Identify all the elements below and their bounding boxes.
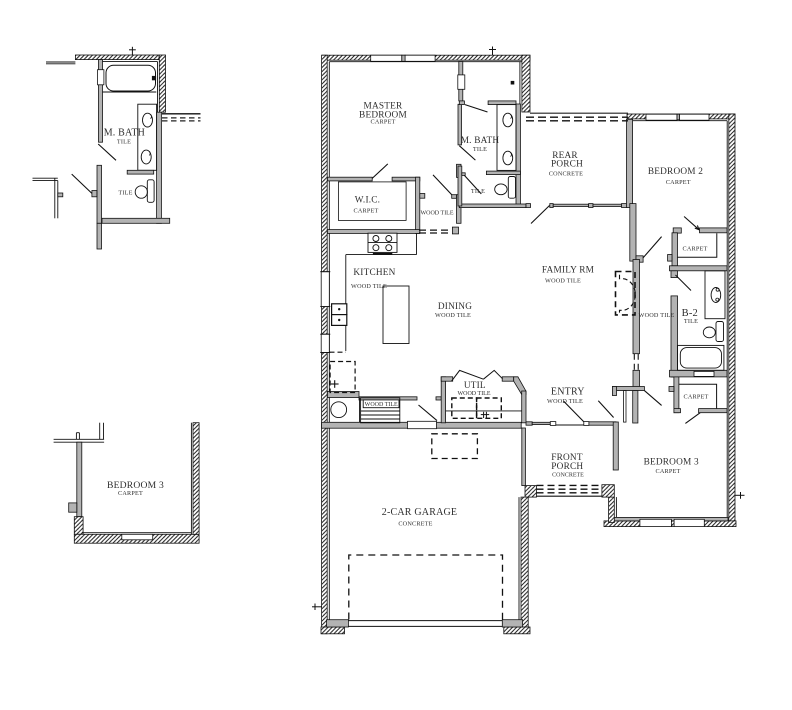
svg-text:CARPET: CARPET — [118, 490, 143, 497]
svg-text:CARPET: CARPET — [684, 394, 709, 401]
svg-text:WOOD TILE: WOOD TILE — [351, 283, 387, 290]
svg-text:WOOD TILE: WOOD TILE — [639, 312, 675, 319]
svg-text:CARPET: CARPET — [656, 468, 681, 475]
svg-text:ENTRY: ENTRY — [551, 386, 585, 397]
svg-text:CARPET: CARPET — [683, 245, 708, 252]
svg-text:BEDROOM 2: BEDROOM 2 — [648, 167, 703, 177]
svg-text:KITCHEN: KITCHEN — [353, 268, 395, 278]
svg-text:CONCRETE: CONCRETE — [549, 170, 583, 177]
svg-text:CONCRETE: CONCRETE — [552, 472, 584, 478]
svg-text:TILE: TILE — [118, 189, 132, 196]
svg-text:2-CAR GARAGE: 2-CAR GARAGE — [382, 507, 457, 518]
svg-text:FAMILY RM: FAMILY RM — [542, 265, 594, 275]
svg-text:WOOD TILE: WOOD TILE — [545, 277, 581, 284]
svg-text:CONCRETE: CONCRETE — [398, 521, 432, 528]
svg-text:CARPET: CARPET — [354, 207, 379, 214]
svg-text:WOOD TILE: WOOD TILE — [420, 210, 453, 216]
svg-text:PORCH: PORCH — [551, 462, 583, 472]
svg-text:WOOD TILE: WOOD TILE — [547, 398, 583, 405]
svg-text:WOOD TILE: WOOD TILE — [457, 391, 490, 397]
svg-text:UTIL: UTIL — [464, 381, 486, 391]
svg-text:BEDROOM 3: BEDROOM 3 — [644, 458, 699, 468]
svg-text:PORCH: PORCH — [551, 160, 583, 170]
svg-text:TILE: TILE — [684, 318, 698, 325]
svg-text:TILE: TILE — [473, 146, 487, 153]
svg-text:TILE: TILE — [471, 188, 485, 195]
svg-text:CARPET: CARPET — [666, 179, 691, 186]
svg-text:B-2: B-2 — [682, 308, 698, 319]
svg-text:W.I.C.: W.I.C. — [355, 196, 380, 206]
svg-text:WOOD TILE: WOOD TILE — [365, 402, 398, 408]
svg-text:CARPET: CARPET — [371, 119, 396, 126]
svg-text:M. BATH: M. BATH — [104, 128, 145, 139]
svg-text:WOOD TILE: WOOD TILE — [435, 312, 471, 319]
svg-text:M. BATH: M. BATH — [461, 136, 500, 146]
svg-text:DINING: DINING — [438, 302, 472, 312]
svg-text:TILE: TILE — [117, 138, 131, 145]
